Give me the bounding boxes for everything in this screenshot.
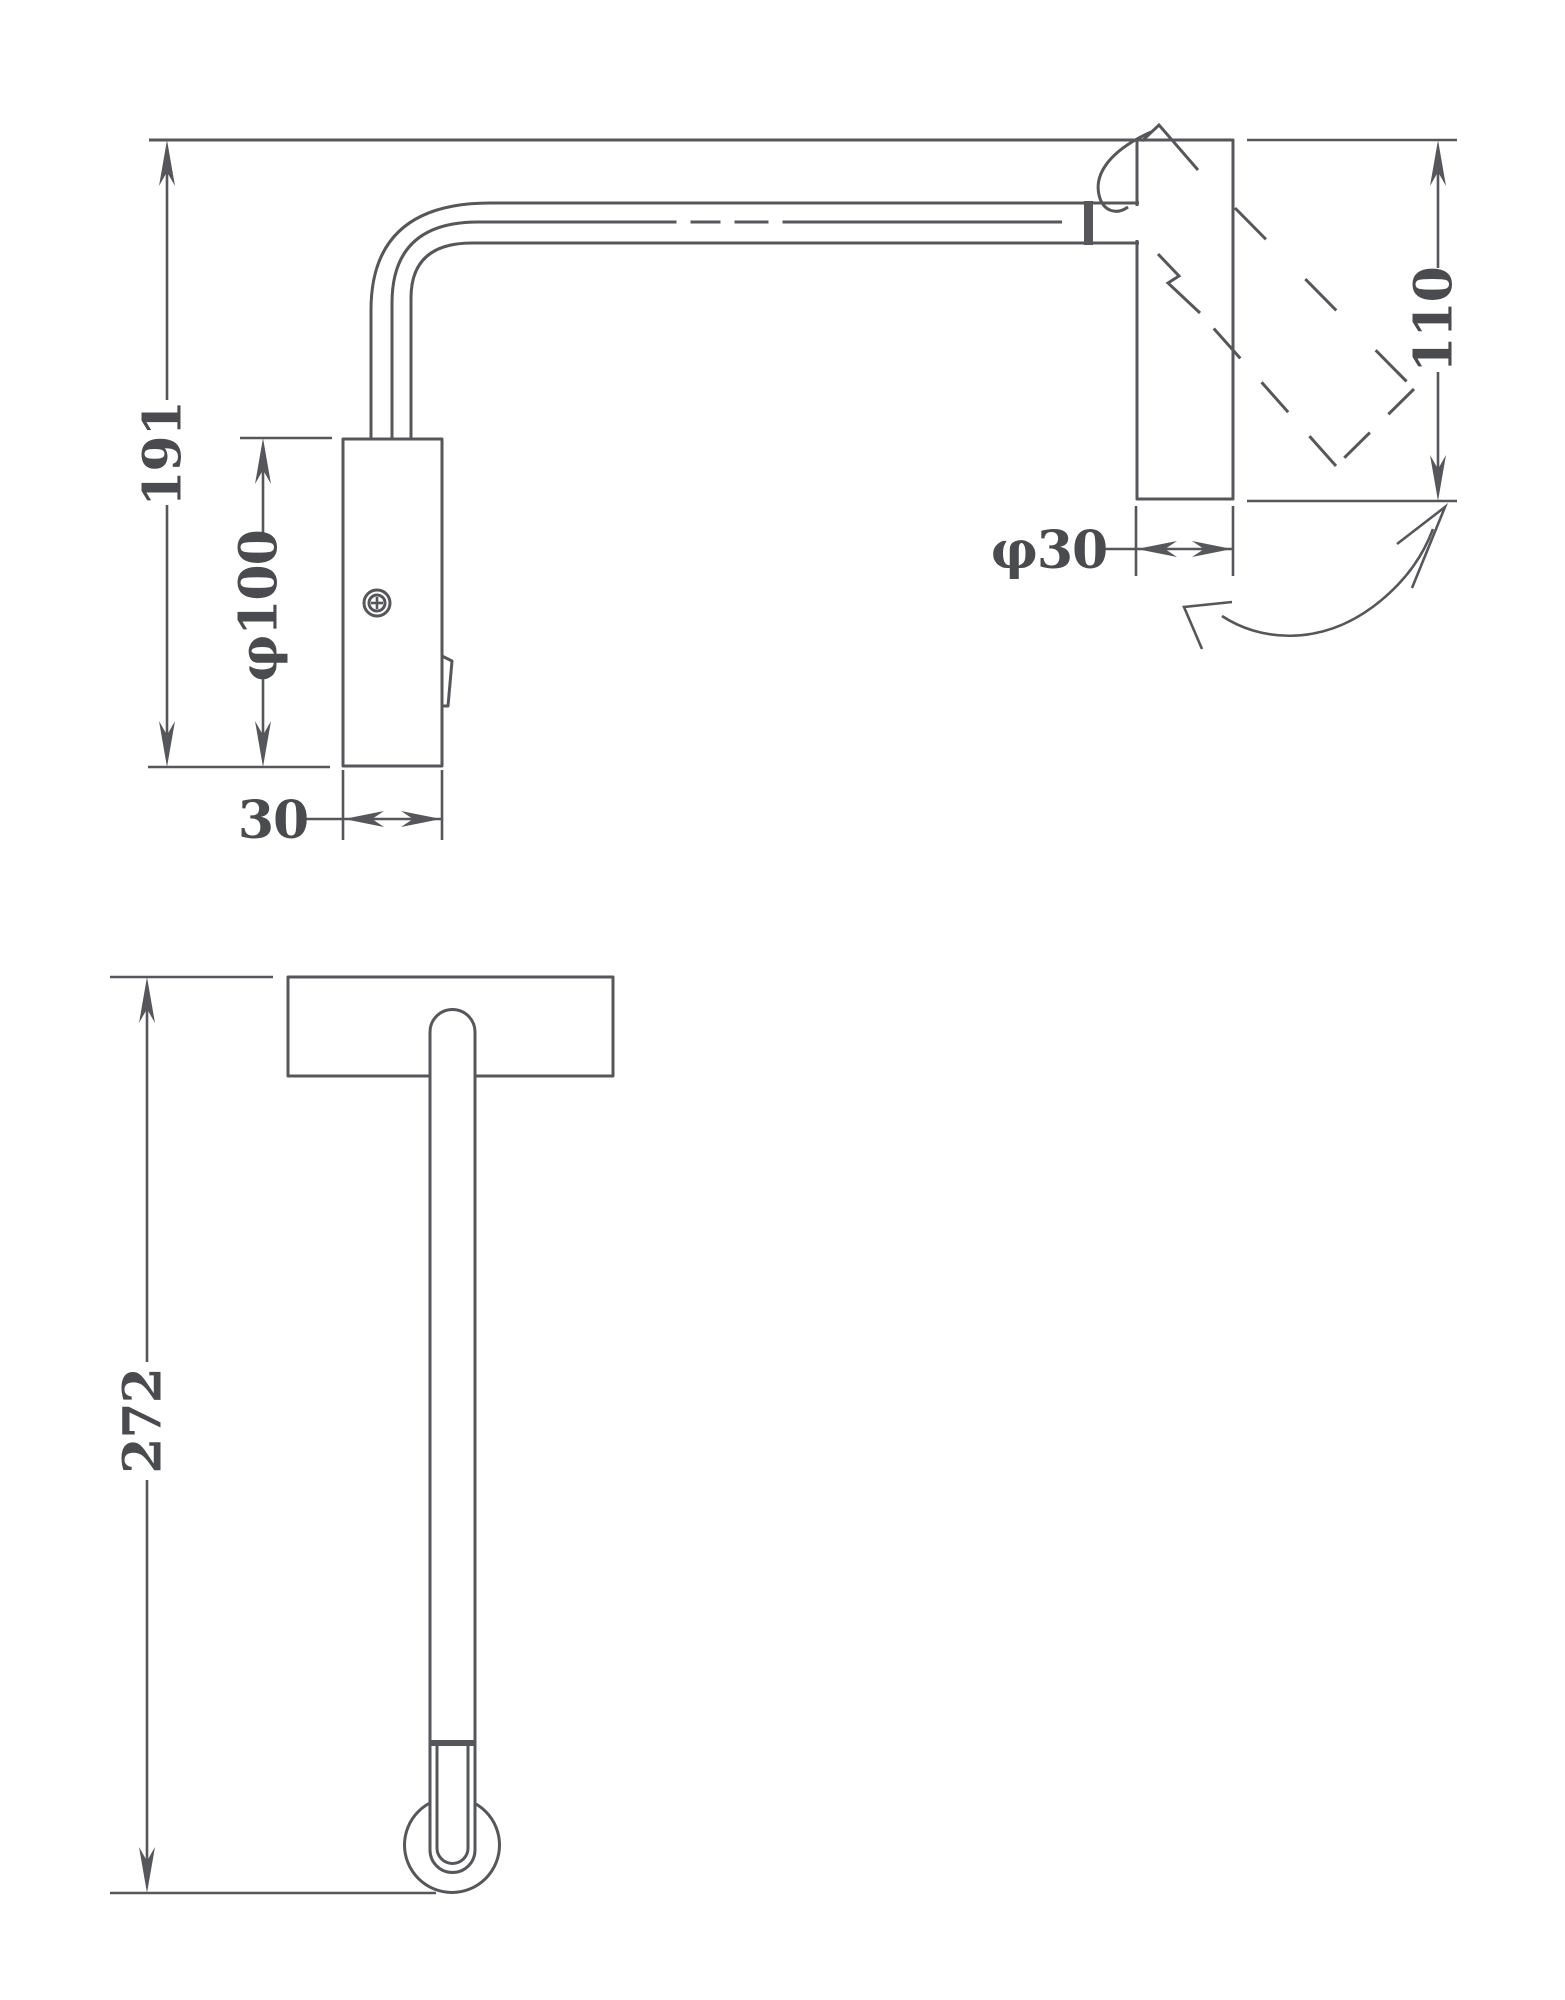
dim-label-phi30: φ30 (991, 520, 1107, 581)
dim-label-191: 191 (133, 401, 194, 507)
arm-tube (371, 201, 1139, 439)
dim-head-diameter: φ30 (991, 506, 1233, 581)
rotated-end-edge (1336, 389, 1414, 466)
rotation-arc (1184, 507, 1445, 649)
dim-label-30: 30 (238, 790, 308, 851)
rotated-top-edge (1235, 208, 1414, 389)
lamp-technical-drawing: 191 φ100 (0, 0, 1565, 2000)
dim-backplate-length: φ100 (229, 438, 333, 767)
dim-label-phi100: φ100 (229, 530, 290, 682)
arc (1222, 529, 1433, 636)
screw-icon (364, 590, 390, 616)
tube-end-cap (1084, 201, 1093, 245)
tube-inner-line (411, 243, 1085, 439)
dim-label-272: 272 (113, 1368, 174, 1474)
dim-backplate-width: 30 (238, 770, 442, 851)
front-view: 272 (110, 977, 613, 1893)
side-view: 191 φ100 (133, 125, 1465, 851)
arc-arrowhead-left-icon (1184, 602, 1232, 649)
tube-centerline (392, 222, 1062, 439)
arm-tube-profile (430, 1010, 475, 1873)
backplate (343, 439, 442, 766)
tube-body-fill (430, 1010, 475, 1858)
dim-overall-projection: 272 (110, 977, 436, 1893)
tube-joint-band (431, 1740, 474, 1746)
tube-outer-line (371, 203, 1085, 439)
technical-drawing-page: 191 φ100 (0, 0, 1565, 2000)
lamp-head (1137, 140, 1233, 499)
dim-label-110: 110 (1404, 267, 1465, 373)
